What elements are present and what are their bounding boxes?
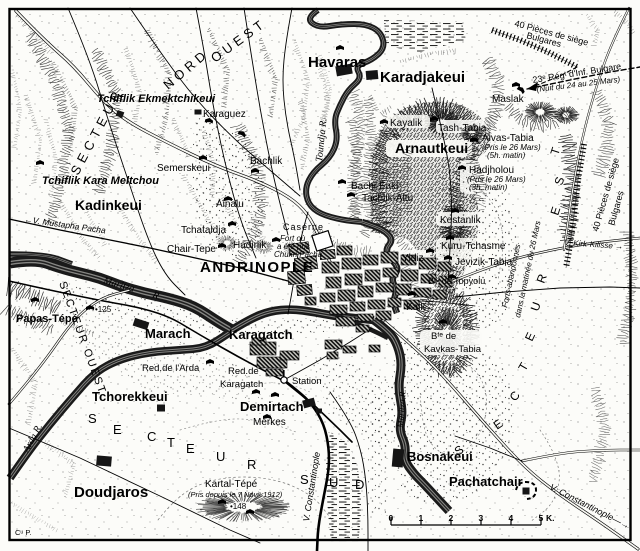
svg-text:Kadinkeui: Kadinkeui (75, 197, 142, 213)
svg-text:Yldiz: Yldiz (402, 253, 424, 264)
svg-text:C: C (147, 429, 156, 444)
svg-text:R: R (247, 457, 256, 472)
svg-text:Hadirlik: Hadirlik (233, 240, 267, 251)
svg-text:Station: Station (292, 376, 322, 387)
svg-text:0: 0 (389, 513, 394, 523)
svg-text:Red.de: Red.de (228, 366, 259, 377)
svg-text:Cᵘ P.: Cᵘ P. (15, 528, 32, 537)
svg-text:E: E (113, 422, 122, 437)
svg-text:5: 5 (539, 513, 544, 523)
svg-text:Tachlik-Altu: Tachlik-Altu (362, 193, 413, 204)
svg-text:Maslak: Maslak (492, 94, 525, 105)
svg-text:Chair-Tepe: Chair-Tepe (167, 244, 216, 255)
svg-text:Bᵗᵉ de Topyolu: Bᵗᵉ de Topyolu (428, 276, 485, 286)
svg-text:Arnautkeui: Arnautkeui (395, 140, 468, 156)
svg-text:Havaras: Havaras (308, 54, 366, 71)
svg-text:Bachi-Faki: Bachi-Faki (351, 181, 398, 192)
svg-text:Papas-Tépé: Papas-Tépé (16, 313, 78, 325)
svg-text:T: T (167, 435, 175, 450)
svg-text:Doudjaros: Doudjaros (74, 484, 148, 501)
svg-text:(Pris depuis le 7 Novʲᵉ 1912): (Pris depuis le 7 Novʲᵉ 1912) (188, 490, 283, 499)
svg-text:Bᵗᵉ de: Bᵗᵉ de (431, 331, 456, 342)
svg-text:•125: •125 (95, 305, 112, 314)
svg-text:Kestanlik: Kestanlik (440, 215, 482, 226)
svg-text:Kartal-Tépé: Kartal-Tépé (205, 479, 258, 490)
svg-text:(3h. matin): (3h. matin) (469, 183, 508, 192)
svg-text:Karaguez: Karaguez (203, 109, 246, 120)
svg-text:ANDRINOPLE: ANDRINOPLE (200, 259, 314, 276)
svg-text:Tash-Tabia: Tash-Tabia (438, 123, 487, 134)
svg-text:D: D (355, 477, 364, 492)
svg-text:Kavkas-Tabia: Kavkas-Tabia (424, 344, 482, 355)
svg-text:Kayalik: Kayalik (390, 118, 423, 129)
svg-text:Karadjakeui: Karadjakeui (380, 69, 465, 86)
svg-text:Jevizik-Tabia: Jevizik-Tabia (455, 257, 513, 268)
svg-text:Red.de l'Arda: Red.de l'Arda (142, 363, 200, 374)
svg-text:Bosnakeui: Bosnakeui (407, 449, 473, 464)
svg-text:Karagatch: Karagatch (220, 379, 263, 390)
svg-text:S: S (88, 411, 97, 426)
svg-text:4: 4 (509, 513, 514, 523)
svg-text:U: U (216, 449, 225, 464)
svg-text:Chukri Pacha: Chukri Pacha (274, 250, 323, 259)
svg-text:Karagatch: Karagatch (229, 327, 293, 342)
svg-text:Tchiflik Kara Meltchou: Tchiflik Kara Meltchou (42, 175, 159, 187)
svg-text:Tchataldja: Tchataldja (181, 225, 226, 236)
svg-text:(5h. matin): (5h. matin) (487, 151, 526, 160)
svg-text:Tchorekkeui: Tchorekkeui (92, 389, 168, 404)
svg-text:Demirtach: Demirtach (240, 399, 304, 414)
svg-text:•148: •148 (230, 502, 247, 511)
svg-text:Kaik: Kaik (406, 302, 426, 313)
svg-text:Kuru-Tchasme: Kuru-Tchasme (441, 241, 506, 252)
svg-text:Marach: Marach (145, 326, 191, 341)
svg-text:3: 3 (479, 513, 484, 523)
svg-text:K.: K. (546, 513, 555, 523)
svg-text:1: 1 (419, 513, 424, 523)
svg-text:Semerskeui: Semerskeui (157, 163, 210, 174)
svg-text:Caserne: Caserne (283, 222, 324, 232)
svg-text:Ainalu: Ainalu (216, 199, 244, 210)
svg-text:Bachlik: Bachlik (250, 156, 283, 167)
svg-text:U: U (329, 475, 338, 490)
svg-text:2: 2 (449, 513, 454, 523)
svg-text:Merkes: Merkes (253, 417, 286, 428)
svg-text:Pachatchair: Pachatchair (449, 474, 523, 489)
svg-text:E: E (186, 441, 195, 456)
